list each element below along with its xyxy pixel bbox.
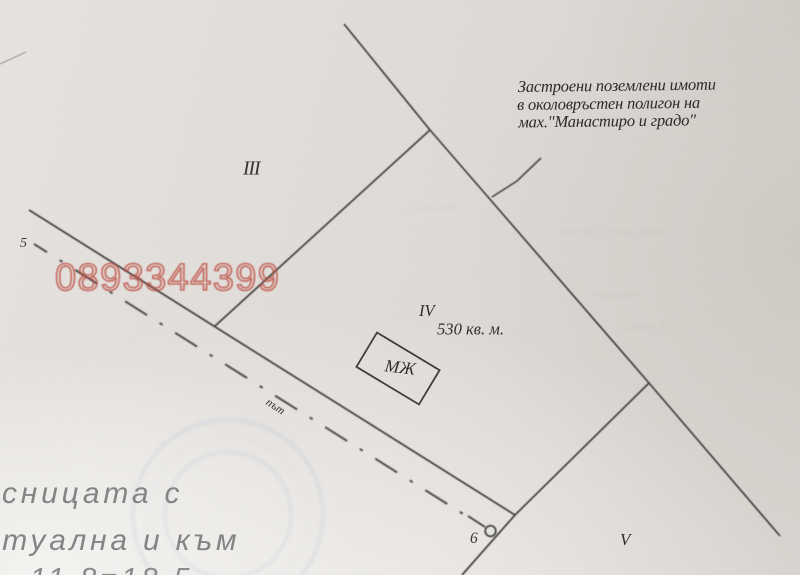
svg-text:нтвидσн: нтвидσн	[594, 287, 638, 301]
svg-text:6: 6	[470, 530, 478, 547]
svg-text:11,8=18,5: 11,8=18,5	[30, 563, 194, 575]
svg-text:5: 5	[20, 236, 27, 251]
svg-text:пйలหม อה: пйలหม อה	[618, 319, 672, 333]
svg-text:ктуална и към: ктуална и към	[0, 524, 240, 557]
svg-text:0893344399: 0893344399	[55, 257, 280, 299]
svg-text:IV: IV	[418, 301, 436, 320]
svg-text:тил: тил	[512, 325, 532, 339]
svg-text:тлานпวกาลเ-анмт: тлานпวกาลเ-анмт	[560, 224, 668, 239]
svg-text:III: III	[242, 159, 262, 180]
svg-text:сницата с: сницата с	[2, 477, 183, 510]
svg-text:МЖ: МЖ	[383, 355, 418, 379]
svg-text:мах."Манастиро и градо": мах."Манастиро и градо"	[517, 110, 696, 131]
svg-text:530 кв. м.: 530 кв. м.	[437, 320, 504, 339]
